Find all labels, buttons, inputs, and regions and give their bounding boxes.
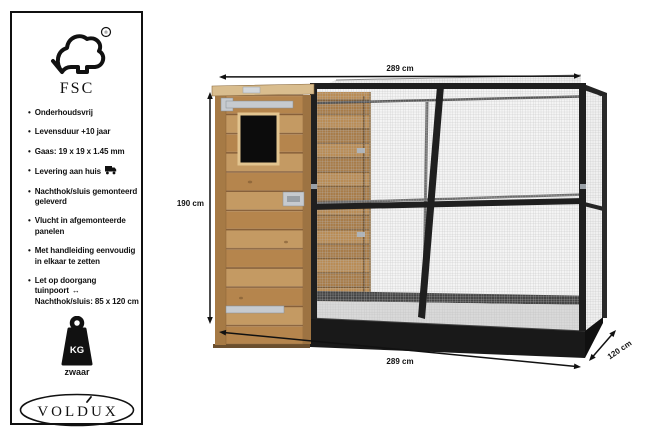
fsc-reg-mark: ® [104,29,108,35]
bullet-icon: • [28,147,31,157]
feature-item: •Met handleiding eenvoudigin elkaar te z… [28,246,140,267]
feature-item: •Vlucht in afgemonteerdepanelen [28,216,140,237]
front-right-post [579,83,586,331]
front-top-beam [310,83,583,89]
product-sheet: 289 cm 190 cm 289 cm 120 cm ® FSC •Onder… [0,0,660,440]
bullet-icon: • [28,216,31,237]
spec-panel: ® FSC •Onderhoudsvrij•Levensduur +10 jaa… [10,11,143,425]
fsc-logo: ® FSC [27,19,127,97]
dimension-arrow-top [225,76,575,77]
brand-accent [87,397,91,402]
house-left-post [215,95,226,345]
feature-text: Let op doorgang tuinpoort↔Nachthok/sluis… [35,276,140,307]
feature-text: Gaas: 19 x 19 x 1.45 mm [35,147,125,157]
brand-logo-block: VOLDUX [18,393,136,432]
side-mesh [586,89,602,331]
house-right-strip [303,95,311,344]
feature-text: Levensduur +10 jaar [35,127,111,137]
fsc-label: FSC [59,80,93,97]
truck-icon [105,166,117,175]
feature-item: •Let op doorgang tuinpoort↔Nachthok/slui… [28,276,140,307]
bullet-icon: • [28,246,31,267]
weight-kg-icon: KG zwaar [52,316,102,378]
feature-item: •Levensduur +10 jaar [28,127,140,137]
arrow-left-right-icon: ↔ [72,286,80,295]
dimension-label-depth: 120 cm [606,339,634,362]
house-window [239,114,278,164]
feature-text: Met handleiding eenvoudigin elkaar te ze… [35,246,136,267]
feature-text: Onderhoudsvrij [35,108,93,118]
bullet-icon: • [28,166,31,177]
brand-label: VOLDUX [37,404,118,420]
weight-caption: zwaar [64,367,90,377]
dimension-label-top: 289 cm [386,64,413,73]
bullet-icon: • [28,276,31,307]
bullet-icon: • [28,187,31,208]
front-mesh [310,89,585,331]
frame-clip-icon [311,184,317,189]
roof-plate-icon [243,87,260,93]
bottom-hinge-icon [226,306,284,313]
feature-text: Vlucht in afgemonteerdepanelen [35,216,126,237]
feature-text: Nachthok/sluis gemonteerdgeleverd [35,187,137,208]
fsc-logo-block: ® FSC [12,19,141,102]
frame-clip-icon [580,184,586,189]
weight-block: KG zwaar [52,316,102,383]
aviary-illustration [310,75,607,358]
feature-item: •Gaas: 19 x 19 x 1.45 mm [28,147,140,157]
feature-text: Levering aan huis [35,166,117,177]
feature-item: •Nachthok/sluis gemonteerdgeleverd [28,187,140,208]
fsc-tree-check-icon [53,36,103,72]
brand-logo: VOLDUX [18,393,136,427]
feature-list: •Onderhoudsvrij•Levensduur +10 jaar•Gaas… [28,108,140,316]
front-left-post [310,83,317,320]
feature-item: •Onderhoudsvrij [28,108,140,118]
dimension-label-bottom: 289 cm [386,357,413,366]
top-hinge-icon [226,101,293,108]
bullet-icon: • [28,108,31,118]
bullet-icon: • [28,127,31,137]
weight-label: KG [69,345,83,356]
house-roof-cap [212,84,314,96]
feature-item: •Levering aan huis [28,166,140,177]
dimension-label-left: 190 cm [177,199,204,208]
night-house [212,84,314,348]
back-right-post [602,95,607,318]
